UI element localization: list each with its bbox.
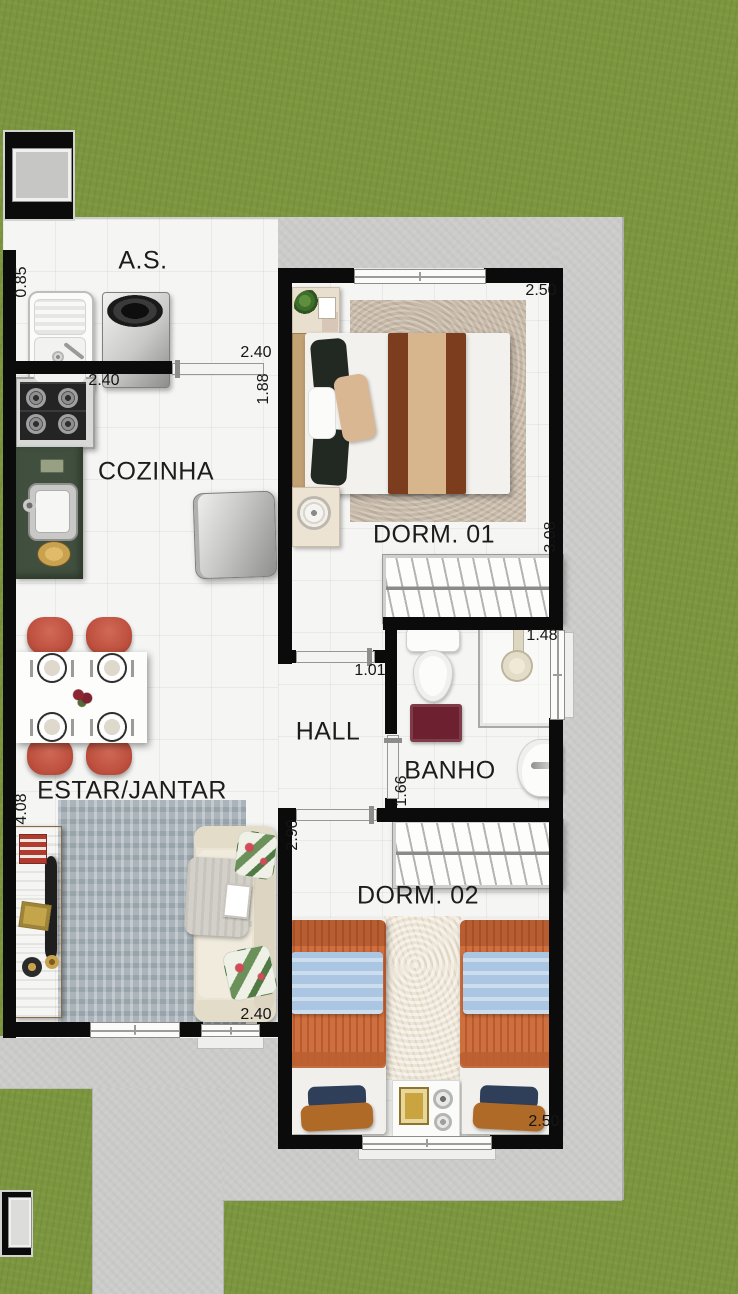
dorm01-wardrobe (383, 555, 563, 623)
twin-bed-right-blue-blanket (463, 952, 555, 1014)
table-centerpiece (70, 686, 94, 708)
sliding-door-living (90, 1022, 180, 1038)
room-label-estar-jantar: ESTAR/JANTAR (37, 777, 227, 806)
dorm01-blanket (388, 333, 466, 494)
place-setting (97, 653, 127, 683)
wall-dorm01-top (285, 268, 354, 283)
soap-dispenser (40, 459, 64, 473)
room-label-cozinha: COZINHA (98, 458, 214, 487)
refrigerator (193, 491, 278, 580)
door-hinge (369, 806, 374, 824)
wall-living-bottom (257, 1022, 292, 1037)
dorm02-nightstand-knob (433, 1089, 453, 1109)
place-setting (97, 712, 127, 742)
utility-box-bottom-left-slab (9, 1198, 31, 1247)
kitchen-sink-basin (35, 490, 70, 533)
stove-burner (58, 388, 78, 408)
twin-bed-right-fold (460, 1052, 558, 1068)
wall-dorm02-left (278, 808, 292, 1149)
dim-estar-length: 4.08 (13, 793, 31, 824)
twin-bed-left-pillow-ochre (300, 1102, 373, 1132)
twin-bed-left-fold (288, 1052, 386, 1068)
stove-burner (26, 414, 46, 434)
place-setting (37, 712, 67, 742)
wall-right (549, 268, 563, 630)
concrete-walkway (92, 1088, 224, 1294)
door-hinge (175, 360, 180, 378)
washbasin-faucet (531, 762, 551, 769)
floor-plan: A.S. COZINHA DORM. 01 HALL BANHO ESTAR/J… (0, 0, 738, 1294)
dorm02-nightstand-knob (434, 1113, 452, 1131)
twin-bed-left-ruffle (288, 920, 386, 946)
wall-living-bottom (3, 1022, 92, 1037)
dim-as-width: 2.40 (240, 344, 271, 362)
kitchen-faucet (23, 499, 36, 512)
window-banho-sill (564, 632, 574, 718)
wall-dorm02-top (377, 808, 563, 822)
wall-dorm02-bottom (490, 1135, 563, 1149)
dim-dorm01-length: 3.08 (542, 521, 560, 552)
dim-dorm01-width: 2.50 (525, 282, 556, 300)
twin-bed-right-ruffle (460, 920, 558, 946)
window-living (201, 1024, 260, 1037)
utility-box-top-left-slab (13, 149, 71, 201)
bread-basket (37, 541, 71, 567)
dim-dorm02-length: 2.90 (284, 819, 302, 850)
washing-machine-lid (107, 295, 163, 327)
twin-bed-left-blue-blanket (291, 952, 383, 1014)
place-setting (37, 653, 67, 683)
room-label-dorm01: DORM. 01 (373, 521, 495, 550)
decor-vase (45, 955, 59, 969)
dim-estar-width: 2.40 (240, 1006, 271, 1024)
dorm02-wardrobe (393, 820, 563, 888)
dim-banho-length: 1.66 (393, 775, 411, 806)
window-dorm02 (362, 1136, 492, 1150)
photo-frame (222, 883, 251, 920)
dim-as-entry: 0.85 (13, 266, 31, 297)
stove-burner (26, 388, 46, 408)
decor-box (19, 834, 47, 864)
dorm01-pillow-white (308, 387, 336, 439)
door-dorm02 (296, 809, 377, 821)
dorm02-nightstand-frame (399, 1087, 429, 1125)
dim-cozinha-depth: 1.88 (255, 373, 273, 404)
dining-chair (27, 617, 73, 655)
bath-mat (410, 704, 462, 742)
room-label-dorm02: DORM. 02 (357, 882, 479, 911)
dim-cozinha-width: 2.40 (88, 372, 119, 390)
dim-dorm02-width: 2.50 (528, 1113, 559, 1131)
stove-burner (58, 414, 78, 434)
room-label-hall: HALL (296, 718, 361, 747)
door-cozinha (172, 363, 264, 375)
sofa-pillow-tropical (221, 944, 278, 1003)
room-label-as: A.S. (118, 247, 167, 276)
wall-center-vertical (278, 268, 292, 664)
toilet-tank (406, 627, 460, 652)
dim-banho-width: 1.48 (526, 627, 557, 645)
room-label-banho: BANHO (404, 757, 495, 786)
wall-living-bottom (178, 1022, 203, 1037)
shower-head (501, 650, 533, 682)
sofa-pillow-tropical (233, 829, 279, 880)
dining-chair (86, 617, 132, 655)
dorm02-rug (384, 916, 462, 1080)
decor-books (18, 901, 51, 931)
wall-left (3, 250, 16, 1038)
wall-right (549, 718, 563, 1149)
door-hinge (384, 738, 402, 743)
wall-dorm01-bottom (278, 650, 296, 663)
wall-hall-banho (385, 617, 397, 734)
laundry-tub-washboard (34, 299, 86, 335)
wall-dorm02-bottom (278, 1135, 362, 1149)
lamp (297, 496, 331, 530)
window-dorm01 (354, 269, 486, 284)
dim-hall-width: 1.01 (354, 662, 385, 680)
picture-frames (318, 297, 336, 319)
decor-vase (22, 957, 42, 977)
